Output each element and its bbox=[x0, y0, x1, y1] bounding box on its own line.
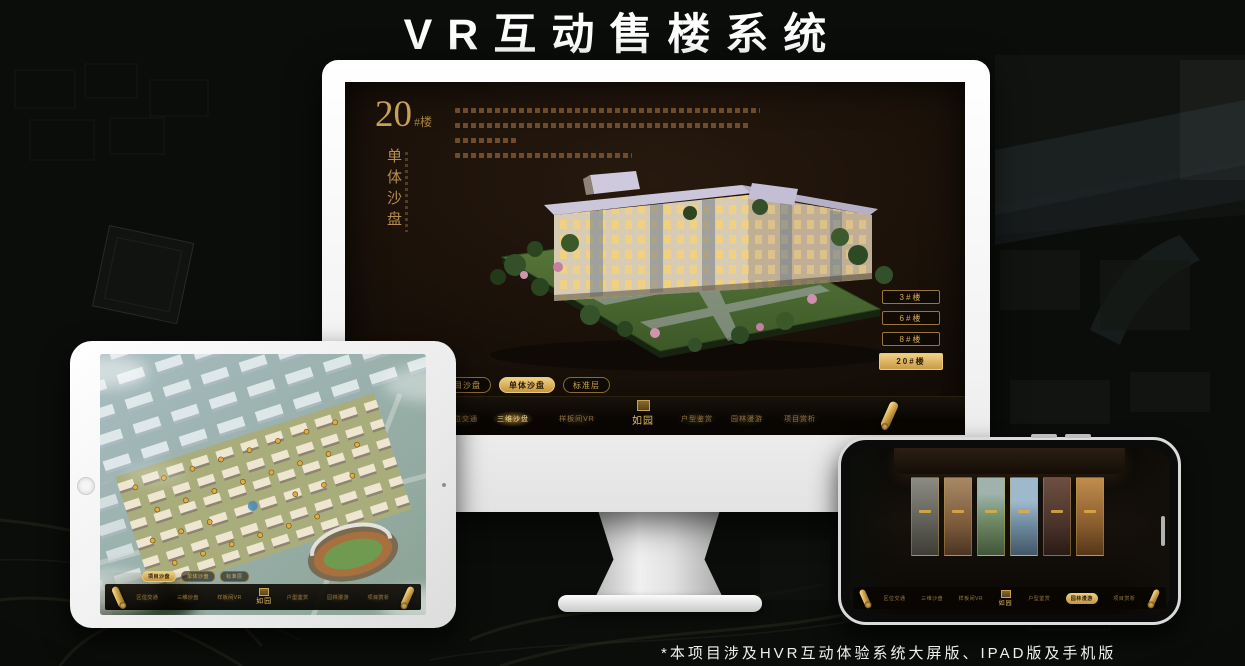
subtab-unit-sandtable[interactable]: 单体沙盘 bbox=[181, 571, 215, 582]
nav-item-modelroom-vr[interactable]: 样板间VR bbox=[213, 591, 245, 604]
brand-logo-text: 如园 bbox=[999, 598, 1013, 607]
monitor-stand bbox=[594, 510, 724, 600]
nav-item-modelroom-vr[interactable]: 样板间VR bbox=[549, 409, 605, 429]
unit-number: 20#楼 bbox=[375, 96, 432, 133]
unit-suffix: #楼 bbox=[414, 115, 432, 129]
page-title: VR互动售楼系统 bbox=[0, 0, 1245, 62]
unit-subtitle: 单体沙盘 bbox=[383, 148, 404, 232]
scene-panel-entrance[interactable] bbox=[1043, 477, 1071, 556]
building-model-illustration[interactable] bbox=[440, 157, 920, 387]
subtab-unit-sandtable[interactable]: 单体沙盘 bbox=[499, 377, 555, 393]
scene-panel-courtyard[interactable] bbox=[911, 477, 939, 556]
floor-button-20[interactable]: 20#楼 bbox=[879, 353, 943, 370]
footnote: *本项目涉及HVR互动体验系统大屏版、IPAD版及手机版 bbox=[661, 642, 1116, 663]
intro-text-line bbox=[455, 123, 751, 128]
intro-text-line bbox=[455, 108, 760, 113]
phone-screen: 区位交通 三维沙盘 样板间VR 如园 户型鉴赏 园林漫游 项目赏析 bbox=[849, 448, 1170, 614]
scroll-left-icon[interactable] bbox=[859, 589, 872, 608]
nav-item-location[interactable]: 区位交通 bbox=[884, 595, 906, 602]
nav-item-floorplan[interactable]: 户型鉴赏 bbox=[1028, 595, 1050, 602]
phone-main-navbar: 区位交通 三维沙盘 样板间VR 如园 户型鉴赏 园林漫游 项目赏析 bbox=[853, 587, 1166, 609]
tablet-device: 项目沙盘 单体沙盘 标准层 区位交通 三维沙盘 样板间VR 如园 户型鉴赏 园林… bbox=[70, 341, 456, 628]
nav-item-garden-tour[interactable]: 园林漫游 bbox=[323, 591, 353, 604]
floor-button-3[interactable]: 3#楼 bbox=[882, 290, 940, 304]
tablet-screen: 项目沙盘 单体沙盘 标准层 区位交通 三维沙盘 样板间VR 如园 户型鉴赏 园林… bbox=[100, 354, 426, 615]
nav-item-floorplan[interactable]: 户型鉴赏 bbox=[283, 591, 313, 604]
scroll-left-icon[interactable] bbox=[111, 586, 126, 609]
camera-dot-icon bbox=[442, 483, 446, 487]
floor-button-8[interactable]: 8#楼 bbox=[882, 332, 940, 346]
nav-item-location[interactable]: 区位交通 bbox=[132, 591, 162, 604]
nav-item-project-gallery[interactable]: 项目赏析 bbox=[1113, 595, 1135, 602]
brand-logo: 如园 bbox=[999, 590, 1013, 607]
desktop-subtabs: 项目沙盘 单体沙盘 标准层 bbox=[435, 377, 610, 393]
promo-canvas: VR互动售楼系统 20#楼 单体沙盘 bbox=[0, 0, 1245, 666]
subtab-standard-floor[interactable]: 标准层 bbox=[220, 571, 249, 582]
subtab-project-sandtable[interactable]: 项目沙盘 bbox=[142, 571, 176, 582]
scene-panel-building[interactable] bbox=[1010, 477, 1038, 556]
scene-panel-study[interactable] bbox=[1076, 477, 1104, 556]
brand-logo-text: 如园 bbox=[256, 596, 272, 606]
subtab-standard-floor[interactable]: 标准层 bbox=[563, 377, 610, 393]
scene-gallery bbox=[911, 477, 1104, 556]
nav-item-project-gallery[interactable]: 项目赏析 bbox=[363, 591, 393, 604]
unit-subtitle-en-decor bbox=[405, 152, 408, 232]
floor-selector: 3#楼 6#楼 8#楼 20#楼 bbox=[879, 290, 943, 370]
brand-seal-icon bbox=[637, 400, 650, 411]
brand-logo: 如园 bbox=[632, 400, 654, 427]
scroll-right-icon[interactable] bbox=[1148, 589, 1161, 608]
scroll-right-icon[interactable] bbox=[400, 586, 415, 609]
nav-item-garden-tour[interactable]: 园林漫游 bbox=[1066, 593, 1098, 604]
nav-item-modelroom-vr[interactable]: 样板间VR bbox=[959, 595, 983, 602]
brand-seal-icon bbox=[1001, 590, 1011, 598]
nav-item-floorplan[interactable]: 户型鉴赏 bbox=[671, 409, 723, 429]
monitor-base bbox=[558, 595, 762, 612]
floor-button-6[interactable]: 6#楼 bbox=[882, 311, 940, 325]
tablet-main-navbar: 区位交通 三维沙盘 样板间VR 如园 户型鉴赏 园林漫游 项目赏析 bbox=[105, 584, 421, 610]
intro-text-line bbox=[455, 138, 516, 143]
nav-item-3d-sandtable[interactable]: 三维沙盘 bbox=[921, 595, 943, 602]
brand-seal-icon bbox=[259, 588, 269, 596]
tablet-subtabs: 项目沙盘 单体沙盘 标准层 bbox=[142, 571, 249, 582]
nav-item-3d-sandtable[interactable]: 三维沙盘 bbox=[487, 409, 539, 429]
volume-button[interactable] bbox=[1031, 434, 1057, 438]
nav-item-project-gallery[interactable]: 项目赏析 bbox=[774, 409, 826, 429]
scene-panel-interior[interactable] bbox=[944, 477, 972, 556]
notch-speaker bbox=[1161, 516, 1165, 546]
nav-item-3d-sandtable[interactable]: 三维沙盘 bbox=[173, 591, 203, 604]
power-button[interactable] bbox=[1065, 434, 1091, 438]
brand-logo-text: 如园 bbox=[632, 412, 654, 427]
courtyard-ceiling-decor bbox=[894, 448, 1125, 474]
home-button[interactable] bbox=[77, 477, 95, 495]
phone-device: 区位交通 三维沙盘 样板间VR 如园 户型鉴赏 园林漫游 项目赏析 bbox=[838, 437, 1181, 625]
scene-panel-garden[interactable] bbox=[977, 477, 1005, 556]
brand-logo: 如园 bbox=[256, 588, 272, 606]
scroll-menu-icon[interactable] bbox=[880, 400, 900, 429]
nav-item-garden-tour[interactable]: 园林漫游 bbox=[721, 409, 773, 429]
